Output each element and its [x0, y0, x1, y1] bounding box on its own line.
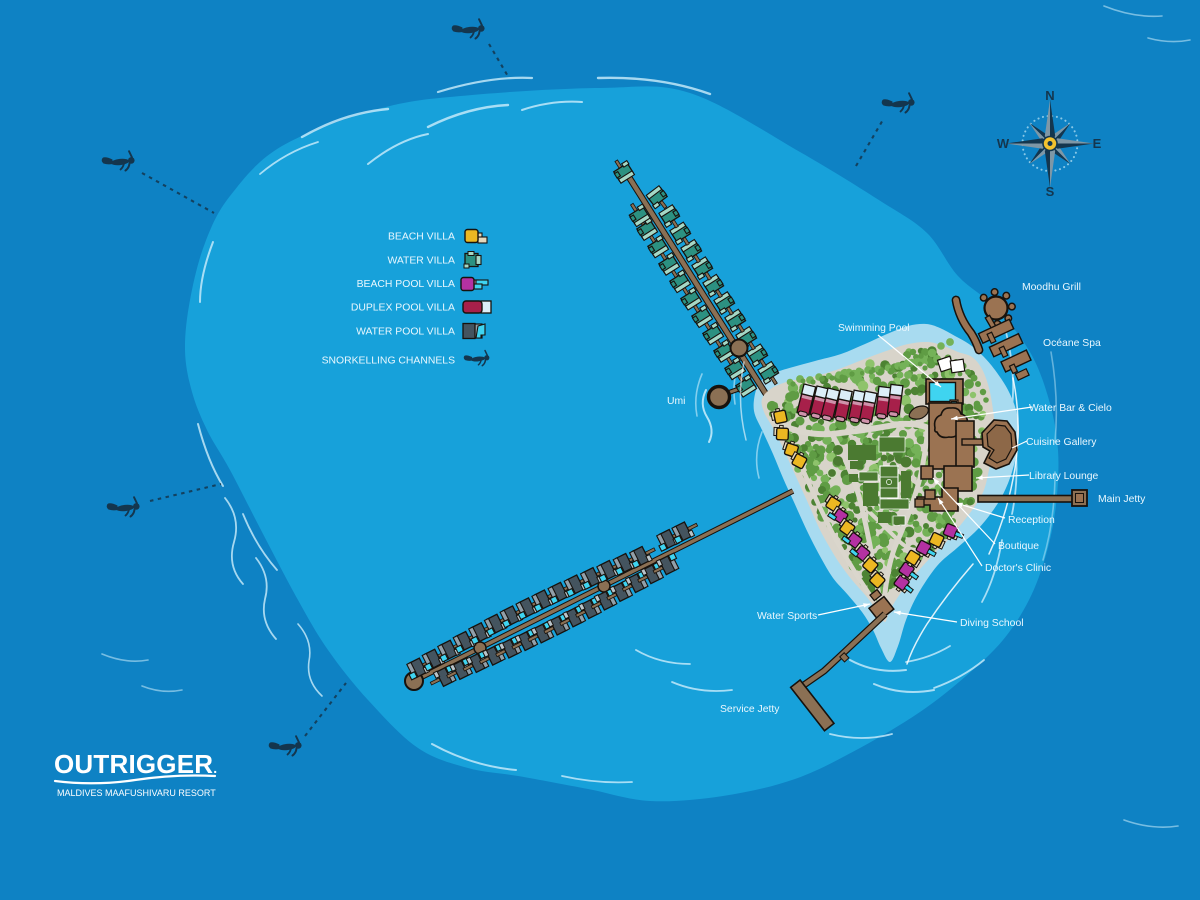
svg-text:N: N: [1045, 88, 1054, 103]
svg-text:BEACH POOL VILLA: BEACH POOL VILLA: [357, 279, 455, 290]
svg-text:W: W: [997, 136, 1010, 151]
svg-text:Moodhu Grill: Moodhu Grill: [1022, 282, 1081, 293]
svg-text:Main Jetty: Main Jetty: [1098, 494, 1146, 505]
svg-text:Doctor's Clinic: Doctor's Clinic: [985, 563, 1051, 574]
svg-text:S: S: [1046, 184, 1055, 199]
svg-text:Water Sports: Water Sports: [757, 611, 817, 622]
svg-text:Océane Spa: Océane Spa: [1043, 338, 1101, 349]
svg-text:Diving School: Diving School: [960, 618, 1024, 629]
svg-text:Boutique: Boutique: [998, 541, 1039, 552]
svg-text:BEACH VILLA: BEACH VILLA: [388, 232, 455, 243]
svg-text:DUPLEX POOL VILLA: DUPLEX POOL VILLA: [351, 303, 455, 314]
svg-text:WATER VILLA: WATER VILLA: [387, 256, 455, 267]
svg-text:Reception: Reception: [1008, 515, 1055, 526]
svg-text:MALDIVES MAAFUSHIVARU RESORT: MALDIVES MAAFUSHIVARU RESORT: [57, 788, 216, 798]
svg-text:Service Jetty: Service Jetty: [720, 704, 780, 715]
svg-text:E: E: [1093, 136, 1102, 151]
svg-text:SNORKELLING CHANNELS: SNORKELLING CHANNELS: [322, 356, 455, 367]
svg-text:WATER POOL VILLA: WATER POOL VILLA: [356, 327, 455, 338]
svg-text:Library Lounge: Library Lounge: [1029, 471, 1099, 482]
svg-text:Swimming Pool: Swimming Pool: [838, 323, 910, 334]
svg-text:Umi: Umi: [667, 396, 685, 407]
svg-text:Cuisine Gallery: Cuisine Gallery: [1026, 437, 1097, 448]
svg-text:Water Bar & Cielo: Water Bar & Cielo: [1029, 403, 1112, 414]
